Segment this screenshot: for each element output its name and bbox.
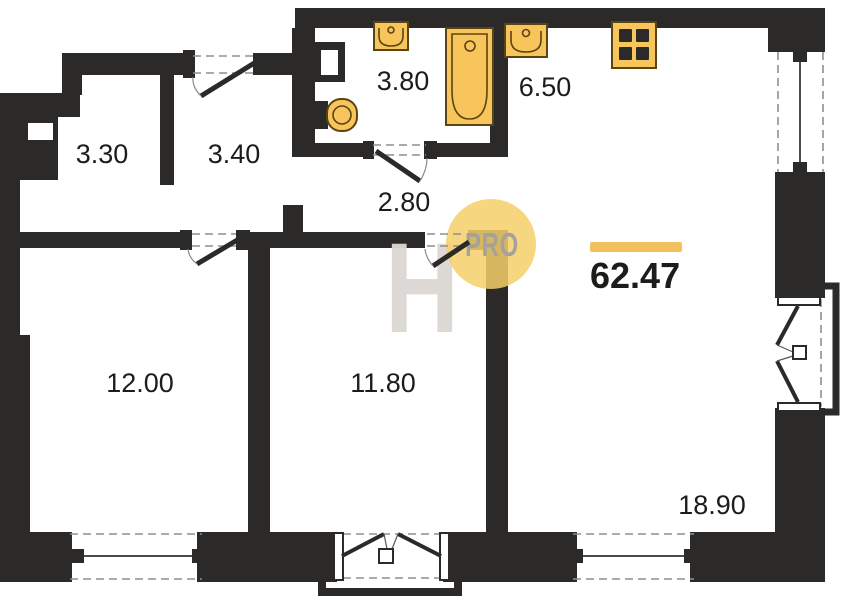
room-area-label: 3.80 bbox=[377, 66, 430, 96]
wall-niche bbox=[28, 123, 53, 140]
window-bottom-right bbox=[571, 534, 696, 579]
room-area-label: 18.90 bbox=[678, 490, 746, 520]
toilet-symbol bbox=[314, 99, 357, 131]
watermark: H PRO bbox=[385, 199, 536, 360]
door-room-12 bbox=[188, 234, 239, 264]
top-right-corner-wall bbox=[768, 8, 825, 52]
fixtures bbox=[314, 22, 656, 131]
entrance-door bbox=[193, 56, 256, 96]
sink-kitchen-symbol bbox=[505, 24, 547, 57]
balcony-right bbox=[822, 286, 836, 412]
balcony-bottom bbox=[322, 580, 458, 592]
room-area-label: 11.80 bbox=[350, 368, 416, 398]
cooktop-symbol bbox=[612, 22, 656, 68]
french-door-right bbox=[777, 297, 821, 411]
window-bottom-left bbox=[70, 534, 204, 579]
room-area-label: 6.50 bbox=[519, 72, 572, 102]
watermark-badge: PRO bbox=[465, 226, 519, 263]
room-area-label: 12.00 bbox=[106, 368, 174, 398]
total-area: 62.47 bbox=[590, 242, 682, 296]
room-area-label: 3.30 bbox=[76, 139, 129, 169]
room-area-label: 3.40 bbox=[208, 139, 261, 169]
french-door-bottom bbox=[334, 533, 449, 580]
window-right bbox=[778, 52, 823, 172]
floor-plan: H PRO bbox=[0, 0, 846, 600]
bathroom-door bbox=[373, 145, 427, 181]
room-area-label: 2.80 bbox=[378, 187, 431, 217]
sink-bathroom-symbol bbox=[374, 22, 408, 50]
bathtub-symbol bbox=[446, 28, 493, 125]
total-area-value: 62.47 bbox=[590, 255, 680, 296]
total-area-accent-bar bbox=[590, 242, 682, 252]
floor-plan-drawing: H PRO bbox=[0, 0, 846, 600]
